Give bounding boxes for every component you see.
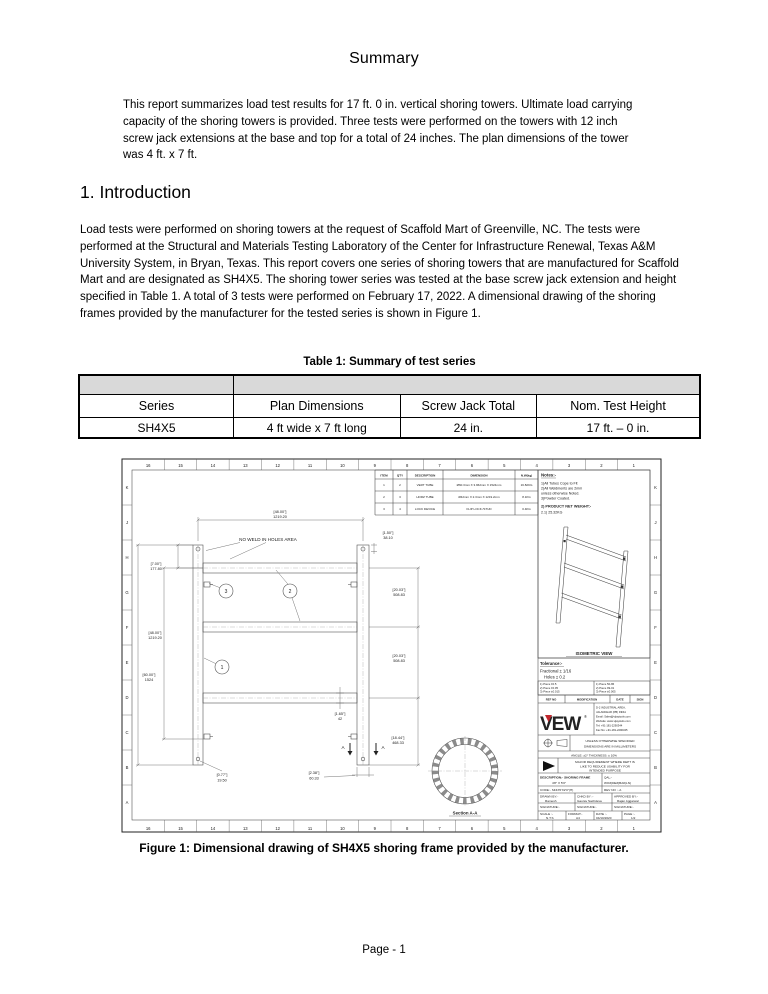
approved-by-name: Rajan Aggarwal <box>617 799 639 803</box>
rev-value: REV NO :- A <box>604 788 622 792</box>
isometric-view: ISOMETRIC VIEW <box>556 527 628 657</box>
notes-line: 3)Powder Coated. <box>541 497 570 501</box>
ref-header: DATE <box>616 698 624 702</box>
grid-col-label: 15 <box>178 826 183 831</box>
grid-row-label: C <box>125 730 128 735</box>
grid-row-label: F <box>654 625 657 630</box>
grid-col-label: 13 <box>243 826 248 831</box>
notes-line: 1)All Tubes Cope to Fit <box>541 482 578 486</box>
table-caption: Table 1: Summary of test series <box>78 356 701 368</box>
tolerance-title: Tolerance:- <box>540 661 563 666</box>
dim-horzod-mm: 42 <box>338 717 342 721</box>
bom-cell: 2 <box>399 483 401 487</box>
grid-col-label: 10 <box>340 463 345 468</box>
bom-cell: 0.4KG <box>522 507 531 511</box>
dim-gap2-mm: 508.83 <box>393 659 405 663</box>
grid-col-label: 12 <box>275 463 280 468</box>
balloon-1: 1 <box>221 665 224 671</box>
angle-note: ANGLE: ±2° THICKNESS: ± 10% <box>571 753 617 757</box>
dim-bottom-in: [18.44"] <box>392 736 405 740</box>
bom-cell: 3 <box>399 495 401 499</box>
grid-col-label: 8 <box>406 826 409 831</box>
dim-gap1-in: [20.03"] <box>393 588 406 592</box>
grid-row-label: J <box>126 520 128 525</box>
tolerance-line: Fractional ± 1/16 <box>540 669 572 674</box>
tolerance-cell: 3) Piece ±0.015 <box>540 690 560 694</box>
dim-span-in: [48.00"] <box>149 631 162 635</box>
signature-label: SIGNATURE:- <box>577 805 597 809</box>
table-cell-height: 17 ft. – 0 in. <box>537 418 700 439</box>
units-note-line: DIMENSIONS ARE IN MILLIMETERS <box>584 745 636 749</box>
grid-row-label: D <box>654 695 657 700</box>
balloon-2: 2 <box>289 589 292 595</box>
balloon-3: 3 <box>225 589 228 595</box>
figure-drawing: 1616151514141313121211111010998877665544… <box>118 455 664 836</box>
section-letter: A <box>341 745 345 750</box>
registered-mark: ® <box>584 714 587 719</box>
table-shaded-row <box>79 375 700 395</box>
bom-cell: Ø42mm X 2.3mm X 1219.2mm <box>458 495 500 499</box>
qal-value: WO#(DE#)BA#(LN) <box>604 781 631 785</box>
warning-triangle-icon <box>543 761 555 771</box>
grid-col-label: 3 <box>568 463 571 468</box>
ref-header: SIGN <box>637 698 644 702</box>
dim-horzod-in: [1.65"] <box>335 712 346 716</box>
summary-title: Summary <box>0 50 768 68</box>
grid-row-label: E <box>126 660 129 665</box>
brand-address-line: D-2 INDUSTRIAL AREA, <box>596 706 626 710</box>
dim-gap2-in: [20.03"] <box>393 654 406 658</box>
description-label: DESCRIPTION:- SHORING FRAME <box>540 776 590 780</box>
grid-col-label: 14 <box>211 826 216 831</box>
grid-row-label: G <box>125 590 128 595</box>
tolerance-block: Tolerance:- Fractional ± 1/16 Holes ± 0.… <box>538 658 650 703</box>
section-cut-marks: A A <box>341 743 385 756</box>
grid-col-label: 11 <box>308 826 313 831</box>
dim-span-mm: 1219.20 <box>148 636 162 640</box>
grid-col-label: 2 <box>600 826 603 831</box>
bom-header: DIMENSION <box>470 474 487 478</box>
dim-width-in: [48.00"] <box>274 510 287 514</box>
grid-col-label: 7 <box>438 463 441 468</box>
grid-col-label: 8 <box>406 463 409 468</box>
bom-cell: Ø60.3mm X 3.962mm X 1524mm <box>457 483 502 487</box>
signature-label: SIGNATURE:- <box>614 805 634 809</box>
frame-front-view <box>193 545 369 765</box>
summary-table: Series Plan Dimensions Screw Jack Total … <box>78 374 701 439</box>
dim-height-mm: 1524 <box>145 678 153 682</box>
dim-top-in: [7.00"] <box>151 562 162 566</box>
bom-cell: 3 <box>383 507 385 511</box>
format-value: A4 <box>576 816 580 820</box>
grid-row-label: G <box>654 590 657 595</box>
notes-line: 2)All Weldments are 2mm <box>541 487 582 491</box>
page-value: 1/2 <box>631 816 636 820</box>
table-cell-series: SH4X5 <box>79 418 233 439</box>
dimension-annotations: [48.00"] 1219.20 [1.50"] 38.10 [7.00"] 1… <box>136 510 420 783</box>
table-shaded-cell <box>79 375 233 395</box>
scale-value: N.T.S <box>546 816 554 820</box>
section-letter: A <box>381 745 385 750</box>
table-shaded-cell <box>233 375 700 395</box>
date-value: 04/10/2020 <box>596 816 612 820</box>
dim-hole-in: [0.77"] <box>217 773 228 777</box>
grid-col-label: 11 <box>308 463 313 468</box>
grid-col-label: 4 <box>536 826 539 831</box>
grid-row-label: H <box>654 555 657 560</box>
bom-cell: 2 <box>383 495 385 499</box>
dim-gap1-mm: 508.83 <box>393 593 405 597</box>
dim-width-mm: 1219.20 <box>273 515 287 519</box>
grid-col-label: 14 <box>211 463 216 468</box>
bom-cell: LOCK DEVICE <box>415 507 435 511</box>
signature-label: SIGNATURE:- <box>540 805 560 809</box>
brand-address-line: Fax No: +91-181-2290345 <box>596 728 628 732</box>
bom-cell: HORZ TUBE <box>416 495 433 499</box>
grid-row-label: A <box>654 800 657 805</box>
title-block: UNLESS OTHERWISE SPECIFIED DIMENSIONS AR… <box>538 470 650 820</box>
bom-cell: VERT TUBE <box>417 483 434 487</box>
bom-header: N.W(kg) <box>521 474 532 478</box>
bom-cell: 1 <box>383 483 385 487</box>
table-row: SH4X5 4 ft wide x 7 ft long 24 in. 17 ft… <box>79 418 700 439</box>
introduction-heading: 1. Introduction <box>80 182 191 203</box>
page-number: Page - 1 <box>0 944 768 956</box>
dim-top-mm: 177.80 <box>150 567 162 571</box>
table-cell-jack: 24 in. <box>400 418 537 439</box>
ref-header: MODIFICATION <box>577 698 597 702</box>
units-note-line: UNLESS OTHERWISE SPECIFIED <box>585 739 635 743</box>
dim-offset-mm: 38.10 <box>383 536 393 540</box>
grid-col-label: 5 <box>503 826 506 831</box>
grid-col-label: 13 <box>243 463 248 468</box>
section-view: Section A-A <box>428 736 502 816</box>
chkd-by-name: Gaurav Sachdeva <box>577 799 602 803</box>
notes-line: unless otherwise Noted. <box>541 492 579 496</box>
dim-height-in: [60.00"] <box>143 673 156 677</box>
grid-col-label: 15 <box>178 463 183 468</box>
dim-hole-mm: 19.50 <box>217 779 227 783</box>
drawn-by-name: Ramesh <box>545 799 557 803</box>
dim-vertod-in: [2.38"] <box>309 771 320 775</box>
bom-cell: FLIP LOCK /STUD <box>466 507 492 511</box>
code-value: CODE:- SF4X5'X2'0"(H) <box>540 788 573 792</box>
net-weight-value: 2.1) 25.32KG <box>541 511 563 515</box>
grid-col-label: 6 <box>471 463 474 468</box>
grid-col-label: 2 <box>600 463 603 468</box>
tolerance-cell: 3) Piece ±0.005 <box>596 690 616 694</box>
grid-col-label: 10 <box>340 826 345 831</box>
description-value: 4'8" X 5'0" <box>552 781 566 785</box>
grid-col-label: 3 <box>568 826 571 831</box>
summary-paragraph: This report summarizes load test results… <box>123 97 644 164</box>
figure-caption: Figure 1: Dimensional drawing of SH4X5 s… <box>0 841 768 855</box>
grid-col-label: 12 <box>275 826 280 831</box>
bom-header: DESCRIPTION <box>415 474 436 478</box>
grid-col-label: 16 <box>146 463 151 468</box>
dim-offset-in: [1.50"] <box>383 531 394 535</box>
grid-row-label: B <box>126 765 129 770</box>
table-header-row: Series Plan Dimensions Screw Jack Total … <box>79 395 700 418</box>
section-label: Section A-A <box>453 811 479 816</box>
table-header-cell: Plan Dimensions <box>233 395 400 418</box>
iso-lock-studs <box>564 540 626 618</box>
grid-row-label: K <box>654 485 657 490</box>
grid-row-label: D <box>125 695 128 700</box>
bom-cell: 16.82KG <box>521 483 534 487</box>
dim-bottom-mm: 468.33 <box>392 741 404 745</box>
grid-row-label: J <box>654 520 656 525</box>
bom-cell: 4 <box>399 507 401 511</box>
grid-col-label: 1 <box>633 463 636 468</box>
grid-col-label: 9 <box>374 463 377 468</box>
isometric-label: ISOMETRIC VIEW <box>576 651 614 656</box>
grid-row-label: A <box>126 800 129 805</box>
grid-col-label: 9 <box>374 826 377 831</box>
grid-row-label: E <box>654 660 657 665</box>
introduction-paragraph: Load tests were performed on shoring tow… <box>80 222 690 323</box>
net-weight-title: 2) PRODUCT NET WEIGHT:- <box>541 505 592 509</box>
bom-cell: 8.1KG <box>522 495 531 499</box>
bom-header: QTY <box>397 474 403 478</box>
grid-col-label: 5 <box>503 463 506 468</box>
major-note-line: INTENDED PURPOSE <box>589 769 621 773</box>
grid-col-label: 7 <box>438 826 441 831</box>
brand-address-line: JALANDHAR (PB) INDIA <box>596 710 626 714</box>
tolerance-line: Holes ± 0.2 <box>544 675 566 680</box>
bom-header: ITEM <box>380 474 388 478</box>
table-header-cell: Screw Jack Total <box>400 395 537 418</box>
brand-address-line: Website: www.vijaytools.com <box>596 719 631 723</box>
grid-row-label: C <box>654 730 657 735</box>
grid-row-label: F <box>126 625 129 630</box>
grid-col-label: 4 <box>536 463 539 468</box>
grid-col-label: 1 <box>633 826 636 831</box>
projection-symbol <box>543 739 567 748</box>
dim-vertod-mm: 60.33 <box>309 777 319 781</box>
brand-address-line: Email: Sales@vijaytools.com <box>596 715 631 719</box>
table-cell-plan: 4 ft wide x 7 ft long <box>233 418 400 439</box>
grid-col-label: 6 <box>471 826 474 831</box>
brand-address-line: Tel: +91-181-2290344 <box>596 724 623 728</box>
bom-table: ITEMQTYDESCRIPTIONDIMENSIONN.W(kg)12VERT… <box>375 470 538 515</box>
table-header-cell: Series <box>79 395 233 418</box>
brand-block: VEW ® D-2 INDUSTRIAL AREA, JALANDHAR (PB… <box>538 703 650 735</box>
no-weld-note: NO WELD IN HOLES AREA <box>239 537 298 542</box>
table-header-cell: Nom. Test Height <box>537 395 700 418</box>
qal-label: QAL:- <box>604 776 612 780</box>
ref-header: REF NO <box>546 698 557 702</box>
grid-row-label: B <box>654 765 657 770</box>
grid-col-label: 16 <box>146 826 151 831</box>
grid-row-label: K <box>126 485 129 490</box>
grid-row-label: H <box>125 555 128 560</box>
notes-block: Notes:- 1)All Tubes Cope to Fit 2)All We… <box>538 470 650 658</box>
notes-title: Notes:- <box>541 473 557 478</box>
